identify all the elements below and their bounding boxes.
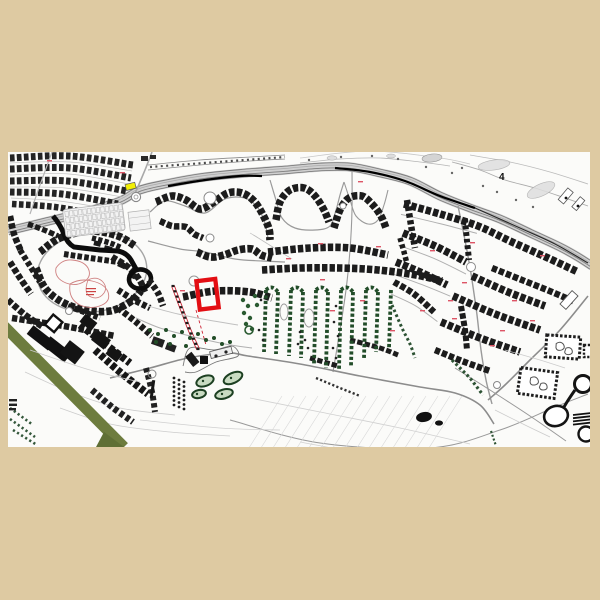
svg-text:4: 4 <box>499 172 505 183</box>
